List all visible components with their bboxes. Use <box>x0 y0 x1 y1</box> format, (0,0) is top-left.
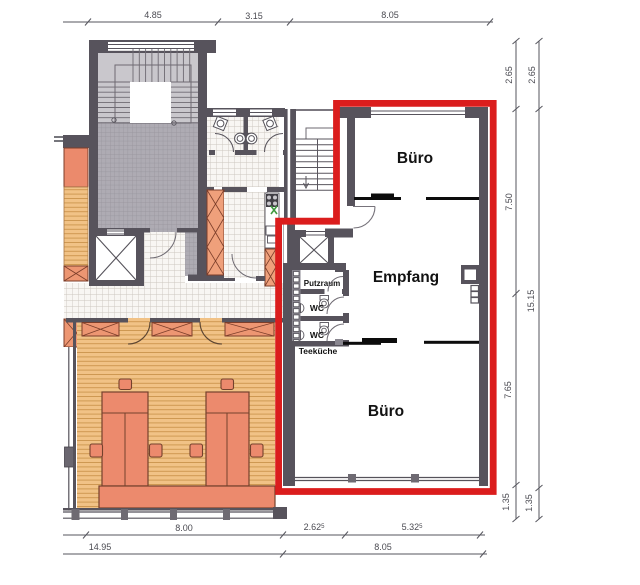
svg-text:Teeküche: Teeküche <box>299 346 338 356</box>
svg-text:7.65: 7.65 <box>503 381 513 399</box>
svg-text:7.50: 7.50 <box>504 193 514 211</box>
svg-text:8.05: 8.05 <box>381 10 399 20</box>
svg-text:4.85: 4.85 <box>144 10 162 20</box>
svg-text:8.05: 8.05 <box>374 542 392 552</box>
svg-text:14.95: 14.95 <box>89 542 112 552</box>
svg-text:3.15: 3.15 <box>245 11 263 21</box>
svg-text:8.00: 8.00 <box>175 523 193 533</box>
svg-text:1.35: 1.35 <box>524 494 534 512</box>
svg-text:WC: WC <box>310 303 324 313</box>
svg-text:2.65: 2.65 <box>504 66 514 84</box>
svg-text:Büro: Büro <box>397 150 433 167</box>
svg-text:WC: WC <box>310 330 324 340</box>
svg-text:Büro: Büro <box>368 403 404 420</box>
svg-text:2.65: 2.65 <box>527 66 537 84</box>
svg-text:Empfang: Empfang <box>373 269 439 286</box>
svg-text:15.15: 15.15 <box>526 290 536 313</box>
svg-text:1.35: 1.35 <box>501 493 511 511</box>
svg-text:Putzraum: Putzraum <box>304 279 340 288</box>
